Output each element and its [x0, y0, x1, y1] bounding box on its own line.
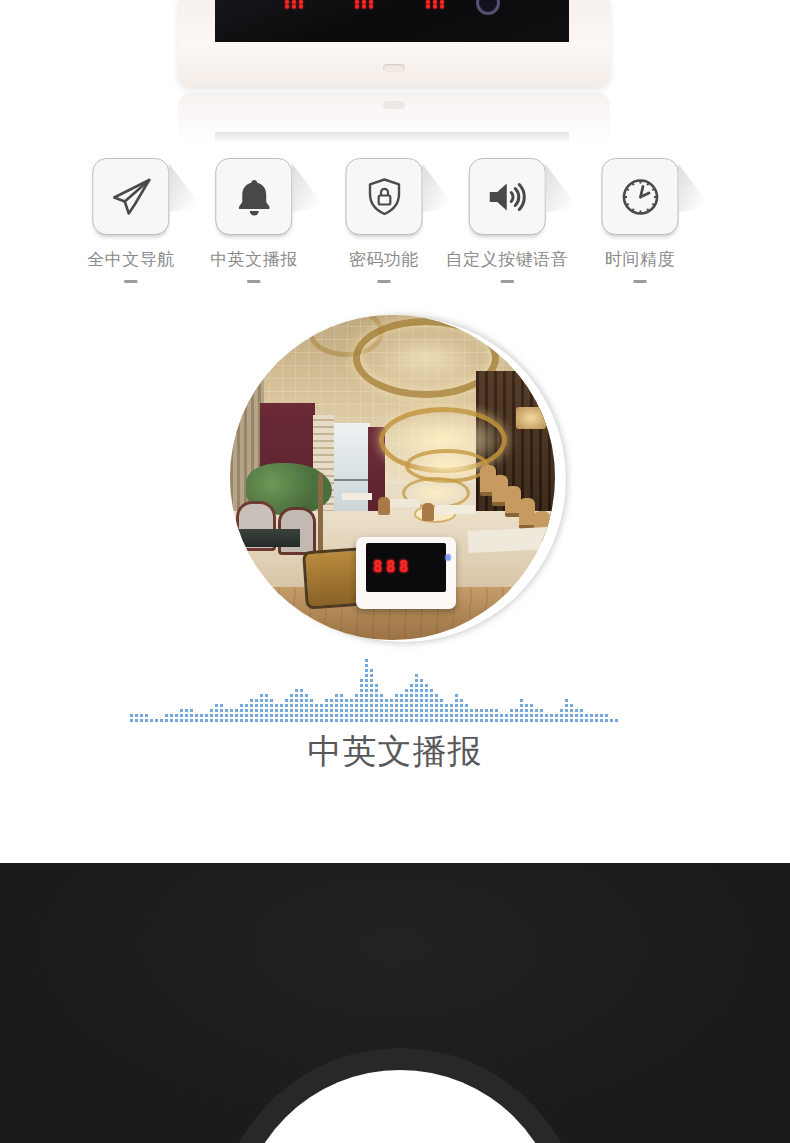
led-digit-group: [285, 0, 306, 9]
ir-sensor-icon: [476, 0, 500, 15]
waveform-bar: [590, 714, 593, 722]
waveform-bar: [495, 709, 498, 722]
feature-card: [469, 158, 546, 235]
waveform-bar: [280, 704, 283, 722]
feature-card: [602, 158, 679, 235]
feature-label: 密码功能: [346, 248, 423, 271]
waveform-bar: [430, 689, 433, 722]
waveform-bar: [480, 709, 483, 722]
waveform-bar: [245, 704, 248, 722]
restaurant-photo-circle: 888 888: [230, 315, 555, 640]
waveform-bar: [130, 714, 133, 722]
waveform-bar: [540, 709, 543, 722]
waveform-bar: [180, 709, 183, 722]
waveform-bar: [615, 719, 618, 722]
waveform-bar: [150, 719, 153, 722]
feature-card: [216, 158, 293, 235]
led-row-2: 888: [373, 560, 412, 575]
speaker-waves-icon: [483, 173, 531, 221]
waveform-bar: [610, 719, 613, 722]
waveform-bar: [355, 694, 358, 722]
waveform-bar: [450, 704, 453, 722]
waveform-bar: [295, 689, 298, 722]
waveform-bar: [410, 684, 413, 722]
waveform-bar: [475, 709, 478, 722]
waveform-bar: [400, 694, 403, 722]
led-digit-group: [426, 0, 447, 9]
waveform-bar: [250, 699, 253, 722]
section-title: 中英文播报: [0, 729, 790, 775]
feature-label: 全中文导航: [87, 248, 175, 271]
waveform-bar: [320, 704, 323, 722]
waveform-bar: [565, 699, 568, 722]
waveform-bar: [265, 694, 268, 722]
waveform-bar: [305, 694, 308, 722]
device-screen: [215, 0, 569, 42]
feature-item-time-accuracy: 时间精度: [602, 158, 679, 283]
waveform-bar: [535, 709, 538, 722]
waveform-bar: [555, 714, 558, 722]
waveform-bar: [225, 709, 228, 722]
feature-item-custom-voice: 自定义按键语音: [446, 158, 569, 283]
feature-card: [93, 158, 170, 235]
waveform-bar: [215, 704, 218, 722]
waveform-bar: [575, 709, 578, 722]
waveform-bar: [385, 699, 388, 722]
waveform-bar: [275, 704, 278, 722]
feature-item-broadcast: 中英文播报: [210, 158, 298, 283]
audio-waveform: [130, 657, 622, 722]
waveform-bar: [340, 694, 343, 722]
waveform-bar: [260, 694, 263, 722]
waveform-bar: [415, 674, 418, 722]
bell-icon: [230, 173, 278, 221]
waveform-bar: [255, 699, 258, 722]
waveform-bar: [230, 709, 233, 722]
waveform-bar: [515, 709, 518, 722]
waveform-bar: [595, 714, 598, 722]
led-digit-group: [355, 0, 376, 9]
shield-lock-icon: [360, 173, 408, 221]
waveform-bar: [160, 719, 163, 722]
waveform-bar: [370, 669, 373, 722]
waveform-bar: [460, 699, 463, 722]
feature-underline: [634, 280, 647, 283]
waveform-bar: [425, 684, 428, 722]
waveform-bar: [435, 694, 438, 722]
waveform-bar: [285, 699, 288, 722]
waveform-bar: [420, 679, 423, 722]
waveform-bar: [485, 709, 488, 722]
waveform-bar: [510, 709, 513, 722]
waveform-bar: [525, 704, 528, 722]
waveform-bar: [600, 714, 603, 722]
waveform-bar: [570, 704, 573, 722]
waveform-bar: [580, 709, 583, 722]
feature-label: 时间精度: [602, 248, 679, 271]
device-button: [383, 64, 405, 72]
waveform-bar: [135, 714, 138, 722]
waveform-bar: [545, 714, 548, 722]
waveform-bar: [465, 704, 468, 722]
waveform-bar: [500, 714, 503, 722]
led-display-device-photo: 888 888: [356, 537, 456, 609]
waveform-bar: [365, 659, 368, 722]
waveform-bar: [300, 689, 303, 722]
waveform-bar: [395, 694, 398, 722]
waveform-bar: [470, 709, 473, 722]
waveform-bar: [270, 699, 273, 722]
waveform-bar: [175, 714, 178, 722]
waveform-bar: [155, 719, 158, 722]
paper-plane-icon: [107, 173, 155, 221]
waveform-bar: [345, 699, 348, 722]
waveform-bar: [585, 714, 588, 722]
waveform-bar: [145, 714, 148, 722]
waveform-bar: [325, 699, 328, 722]
waveform-bar: [140, 714, 143, 722]
waveform-bar: [220, 704, 223, 722]
waveform-bar: [195, 714, 198, 722]
waveform-bar: [490, 709, 493, 722]
waveform-bar: [190, 709, 193, 722]
waveform-bar: [405, 689, 408, 722]
waveform-bar: [505, 714, 508, 722]
feature-underline: [248, 280, 261, 283]
waveform-bar: [310, 699, 313, 722]
waveform-bar: [560, 709, 563, 722]
waveform-bar: [235, 709, 238, 722]
device-reflection: [178, 92, 610, 154]
feature-underline: [125, 280, 138, 283]
chandelier: [379, 407, 507, 473]
waveform-bar: [210, 709, 213, 722]
waveform-bar: [390, 699, 393, 722]
waveform-bar: [165, 714, 168, 722]
waveform-bar: [375, 684, 378, 722]
waveform-bar: [170, 714, 173, 722]
waveform-bar: [530, 704, 533, 722]
waveform-bar: [290, 694, 293, 722]
led-indicators: [446, 555, 450, 592]
waveform-bar: [445, 704, 448, 722]
waveform-bar: [330, 699, 333, 722]
feature-underline: [501, 280, 514, 283]
waveform-bar: [520, 699, 523, 722]
waveform-bar: [360, 679, 363, 722]
waveform-bar: [240, 704, 243, 722]
feature-label: 中英文播报: [210, 248, 298, 271]
feature-item-password: 密码功能: [346, 158, 423, 283]
waveform-bar: [380, 694, 383, 722]
waveform-bar: [200, 714, 203, 722]
clock-icon: [616, 173, 664, 221]
feature-underline: [378, 280, 391, 283]
feature-item-navigation: 全中文导航: [87, 158, 175, 283]
feature-card: [346, 158, 423, 235]
product-detail-page: 全中文导航 中英文播报 密码功能: [0, 0, 790, 1143]
waveform-bar: [315, 704, 318, 722]
waveform-bar: [550, 714, 553, 722]
waveform-bar: [455, 694, 458, 722]
dark-section: [0, 863, 790, 1143]
waveform-bar: [350, 699, 353, 722]
led-display-device: [178, 0, 610, 87]
waveform-bar: [440, 699, 443, 722]
waveform-bar: [335, 694, 338, 722]
waveform-bar: [205, 714, 208, 722]
waveform-bar: [605, 714, 608, 722]
waveform-bar: [185, 709, 188, 722]
feature-label: 自定义按键语音: [446, 248, 569, 271]
